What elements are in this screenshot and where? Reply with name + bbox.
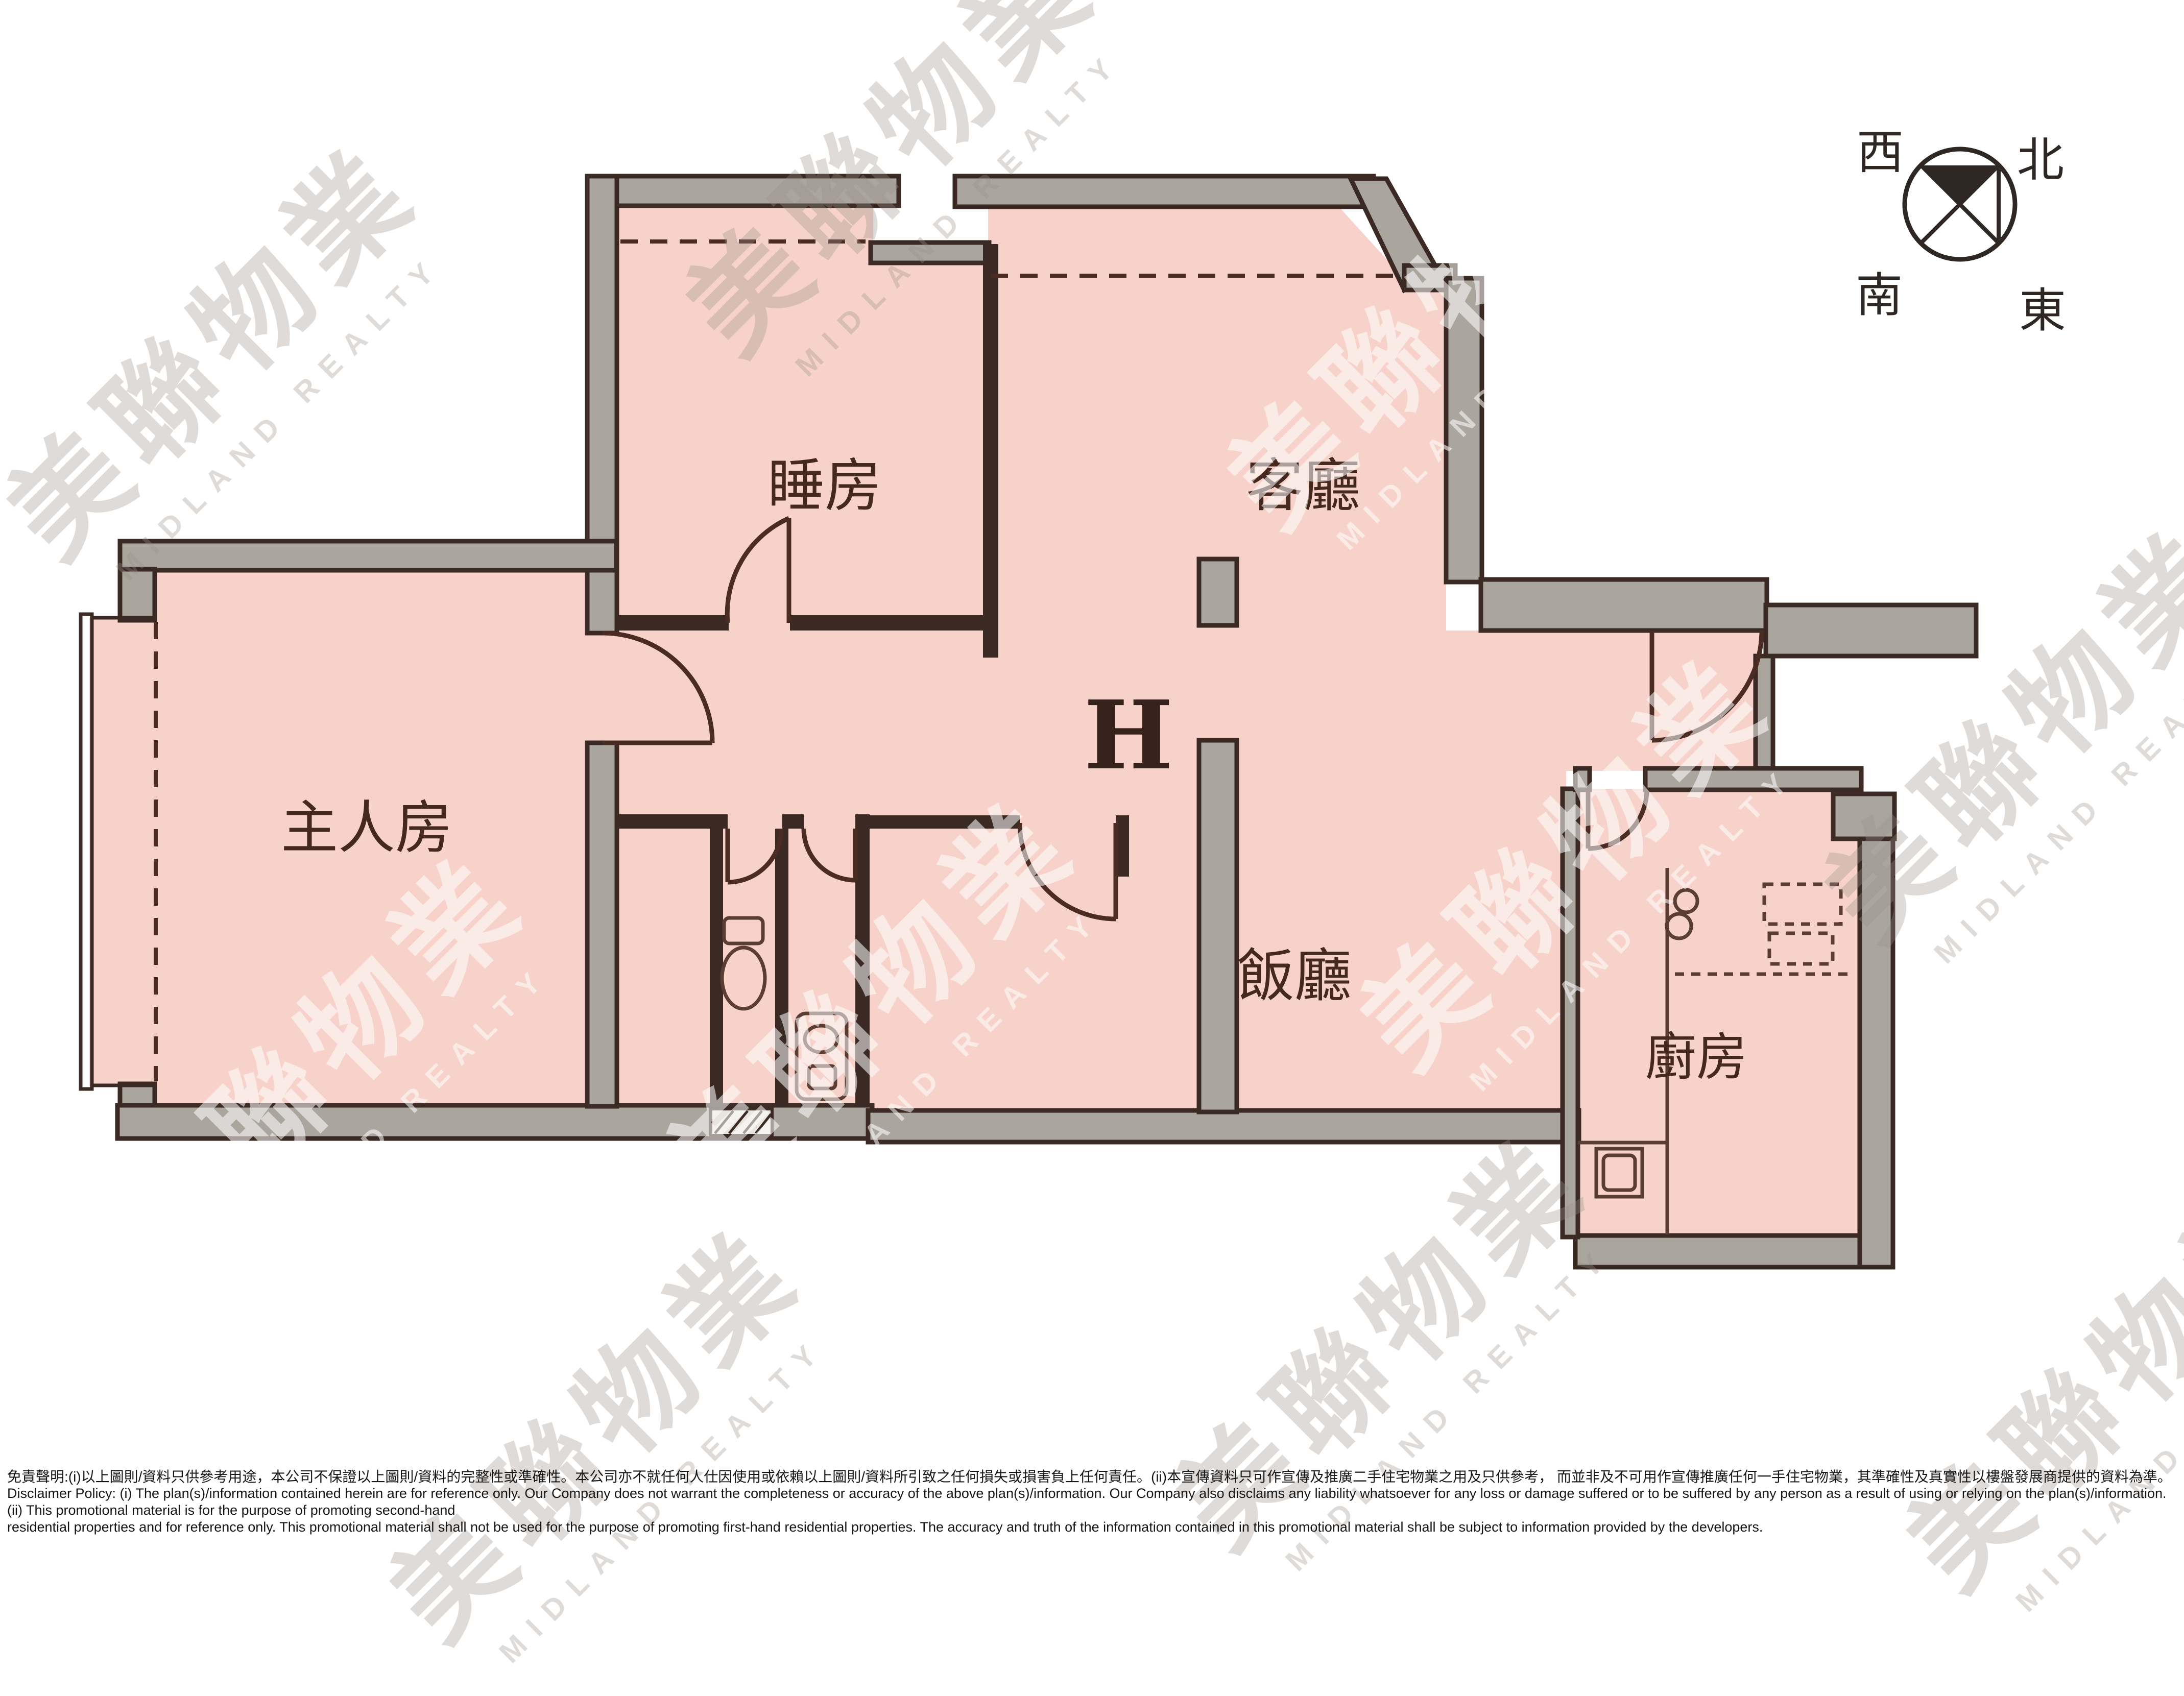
label-living-room: 客廳 xyxy=(1246,453,1360,519)
compass-east: 東 xyxy=(2019,283,2066,338)
label-dining-room: 飯廳 xyxy=(1237,943,1352,1009)
label-master-bedroom: 主人房 xyxy=(281,795,452,861)
compass-needle xyxy=(1921,165,1999,204)
compass-west: 西 xyxy=(1857,125,1904,180)
room-floors xyxy=(89,204,1861,1237)
room-dining xyxy=(1236,631,1566,1110)
disclaimer-line-zh: 免責聲明:(i)以上圖則/資料只供參考用途，本公司不保證以上圖則/資料的完整性或… xyxy=(7,1468,2177,1485)
room-kitchen xyxy=(1577,789,1861,1237)
compass-north: 北 xyxy=(2017,133,2064,187)
compass-south: 南 xyxy=(1856,268,1903,323)
window-hatch xyxy=(711,1109,772,1135)
label-unit: H xyxy=(1084,680,1173,791)
label-bedroom: 睡房 xyxy=(767,453,882,519)
room-bedroom xyxy=(615,204,873,631)
disclaimer: 免責聲明:(i)以上圖則/資料只供參考用途，本公司不保證以上圖則/資料的完整性或… xyxy=(7,1468,2177,1536)
room-master-bay xyxy=(89,618,156,1086)
compass-rose: 西 北 南 東 xyxy=(1856,125,2066,338)
room-foyer xyxy=(1565,631,1759,771)
disclaimer-line-en1: Disclaimer Policy: (i) The plan(s)/infor… xyxy=(7,1485,2177,1519)
room-bedroom-right xyxy=(871,261,989,631)
floor-plan: 睡房 客廳 主人房 飯廳 廚房 H 西 北 南 東 xyxy=(0,0,2184,1527)
disclaimer-line-en2: residential properties and for reference… xyxy=(7,1519,2177,1536)
label-kitchen: 廚房 xyxy=(1645,1027,1747,1087)
